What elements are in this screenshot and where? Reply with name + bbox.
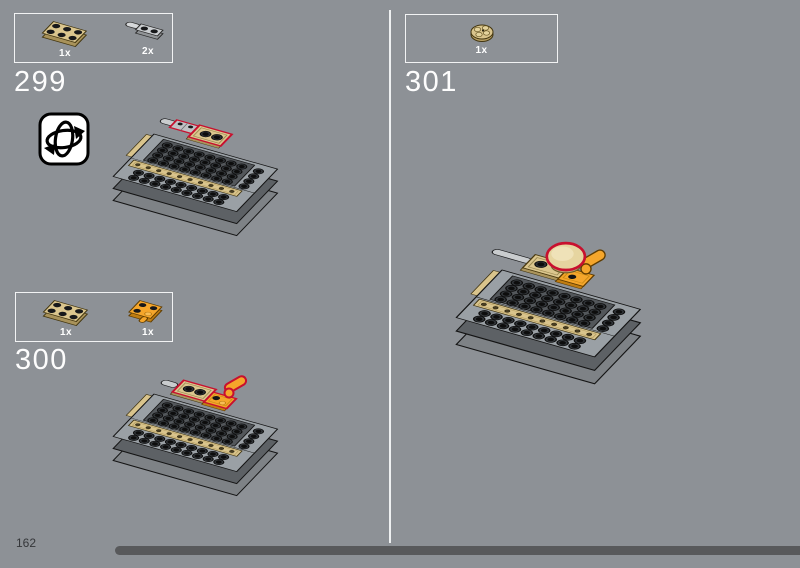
gray-1x2-handle-plate-icon: [125, 19, 171, 45]
parts-box-299: 1x 2x: [14, 13, 173, 63]
orange-2x2-clip-plate-icon: [126, 296, 170, 326]
part-quantity: 1x: [60, 327, 72, 338]
part-quantity: 1x: [59, 48, 71, 59]
part-tan-2x3-plate: 1x: [40, 296, 92, 338]
part-quantity: 2x: [142, 46, 154, 57]
page-number: 162: [16, 536, 36, 550]
assembly-illustration-301: [442, 226, 712, 434]
step-number-301: 301: [405, 66, 458, 99]
assembly-illustration-299: [98, 94, 338, 270]
parts-box-300: 1x 1x: [15, 292, 173, 342]
assembly-illustration-300: [98, 352, 338, 534]
part-quantity: 1x: [142, 327, 154, 338]
tan-2x3-plate-icon: [40, 296, 92, 326]
parts-box-301: 1x: [405, 14, 558, 63]
step-number-299: 299: [14, 66, 67, 99]
part-tan-2x3-plate: 1x: [39, 17, 91, 59]
part-quantity: 1x: [475, 45, 487, 56]
part-orange-2x2-clip-plate: 1x: [126, 296, 170, 338]
step-number-300: 300: [15, 344, 68, 377]
tan-2x3-plate-icon: [39, 17, 91, 47]
part-tan-2x2-round-plate: 1x: [466, 22, 498, 56]
rotate-model-icon: [38, 112, 90, 166]
part-gray-1x2-handle-plate: 2x: [125, 19, 171, 57]
column-divider: [389, 10, 391, 543]
tan-2x2-round-plate-icon: [466, 22, 498, 44]
progress-bar[interactable]: [115, 546, 800, 555]
